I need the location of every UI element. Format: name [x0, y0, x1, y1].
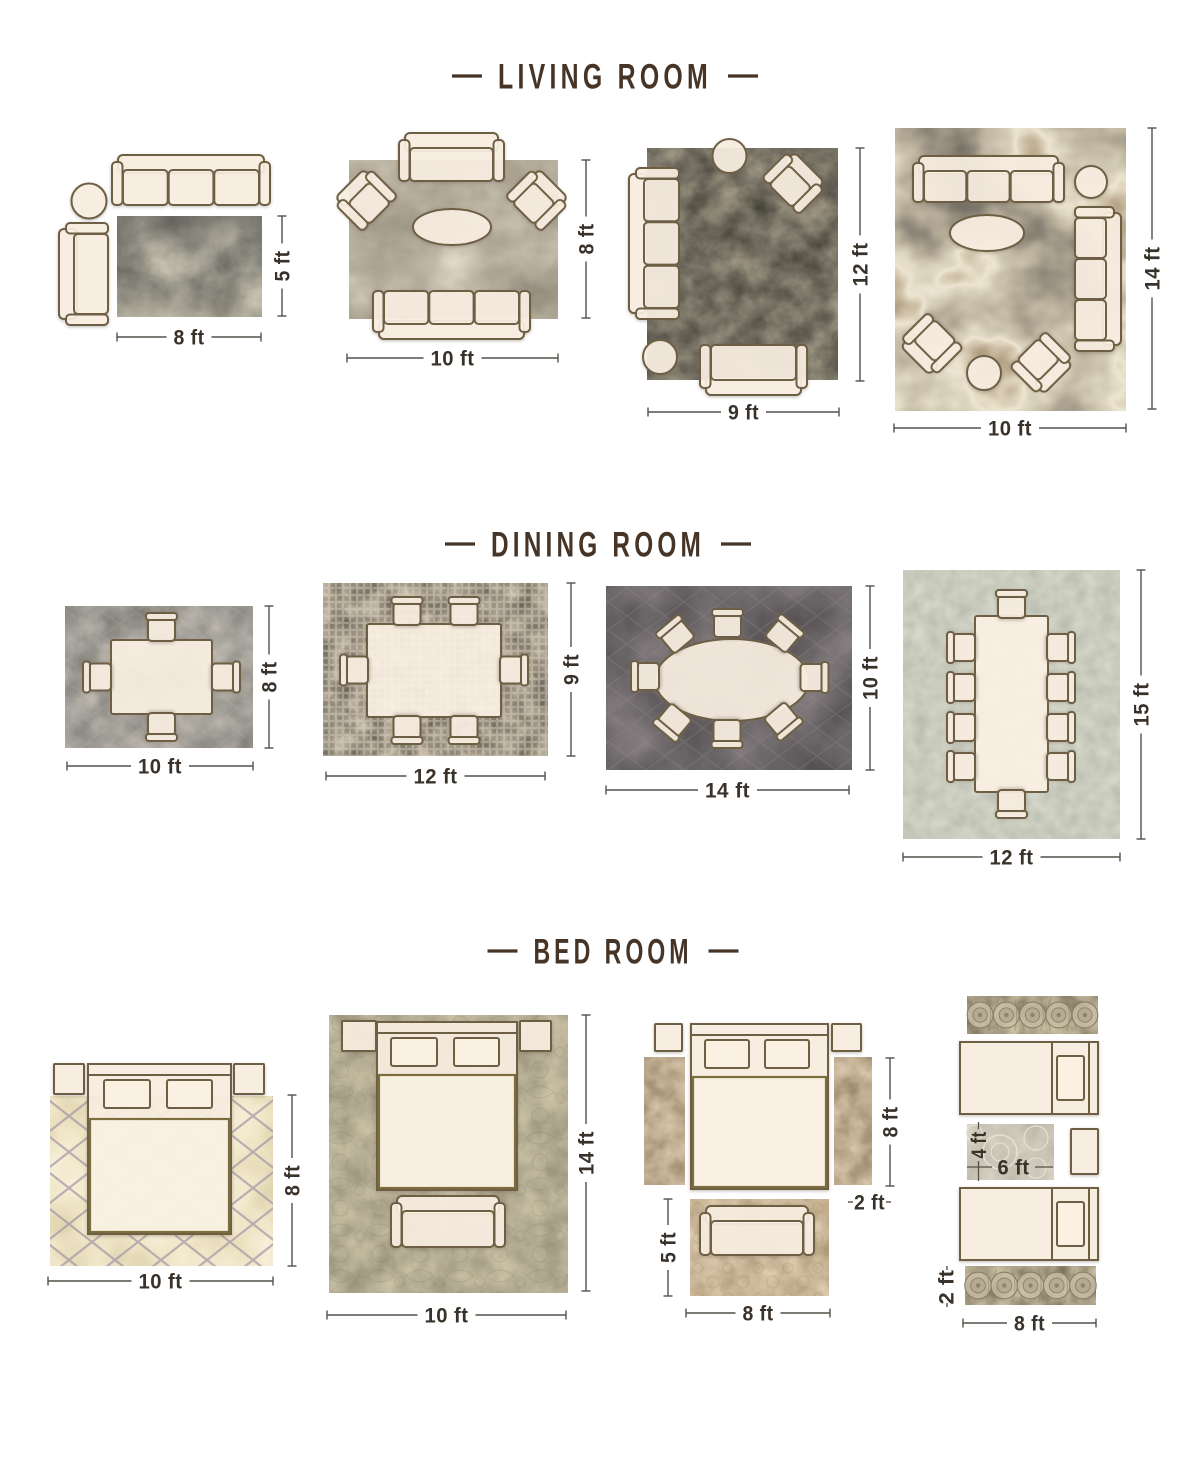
svg-text:14 ft: 14 ft [1142, 247, 1165, 291]
svg-text:9 ft: 9 ft [728, 402, 759, 425]
svg-text:12 ft: 12 ft [850, 243, 873, 287]
svg-text:5 ft: 5 ft [658, 1232, 681, 1263]
svg-text:8 ft: 8 ft [743, 1303, 774, 1326]
svg-text:10 ft: 10 ft [988, 418, 1032, 441]
svg-text:4 ft: 4 ft [968, 1132, 991, 1159]
svg-text:8 ft: 8 ft [174, 327, 205, 350]
svg-text:8 ft: 8 ft [880, 1107, 903, 1138]
svg-text:8 ft: 8 ft [576, 224, 599, 255]
svg-text:6 ft: 6 ft [998, 1157, 1030, 1180]
svg-text:10 ft: 10 ft [860, 656, 883, 700]
svg-text:10 ft: 10 ft [425, 1305, 469, 1328]
svg-text:8 ft: 8 ft [282, 1165, 305, 1196]
svg-text:12 ft: 12 ft [414, 766, 458, 789]
svg-text:12 ft: 12 ft [990, 847, 1034, 870]
svg-text:9 ft: 9 ft [561, 654, 584, 685]
svg-text:BED ROOM: BED ROOM [534, 933, 693, 972]
svg-text:10 ft: 10 ft [431, 348, 475, 371]
svg-text:5 ft: 5 ft [272, 251, 295, 282]
svg-text:DINING ROOM: DINING ROOM [491, 526, 705, 565]
svg-text:2 ft: 2 ft [854, 1192, 885, 1215]
svg-text:15 ft: 15 ft [1131, 683, 1154, 727]
svg-text:14 ft: 14 ft [705, 780, 750, 803]
svg-text:10 ft: 10 ft [139, 1271, 183, 1294]
svg-text:10 ft: 10 ft [138, 756, 182, 779]
svg-text:2 ft: 2 ft [936, 1270, 959, 1305]
svg-text:LIVING ROOM: LIVING ROOM [498, 58, 712, 97]
svg-text:8 ft: 8 ft [1014, 1313, 1045, 1336]
svg-text:8 ft: 8 ft [259, 662, 282, 693]
svg-text:14 ft: 14 ft [576, 1131, 599, 1175]
